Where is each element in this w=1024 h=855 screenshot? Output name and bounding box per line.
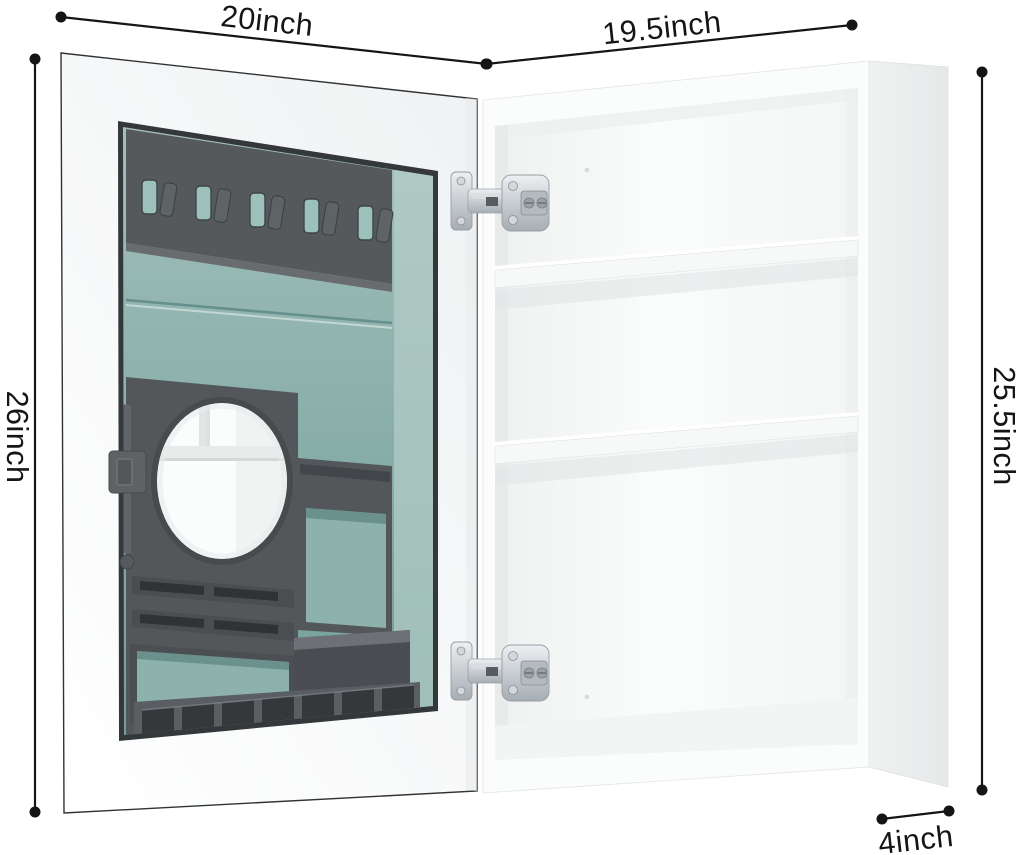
product-diagram: 20inch 19.5inch 26inch 25.5inch 4inch [0,0,1024,855]
dimension-label-cabinet-depth: 4inch [876,819,955,855]
dim-cabinet-depth: 4inch [876,806,955,855]
dimension-label-door-height: 26inch [0,391,34,484]
cabinet-door [61,53,477,813]
dim-door-height: 26inch [0,54,41,818]
cabinet-side-panel [869,61,948,787]
dimension-label-cabinet-height: 25.5inch [987,366,1021,485]
glass-edge-strip [394,166,433,712]
cabinet-body [483,61,948,793]
dim-cabinet-height: 25.5inch [977,67,1022,796]
storage-bin-right [298,458,392,636]
shelf-pin-hole [585,168,590,173]
dim-cabinet-width: 19.5inch [481,5,858,70]
dimension-label-cabinet-width: 19.5inch [601,5,723,51]
door-knob [120,555,134,569]
shelf-pin-hole [585,695,590,700]
